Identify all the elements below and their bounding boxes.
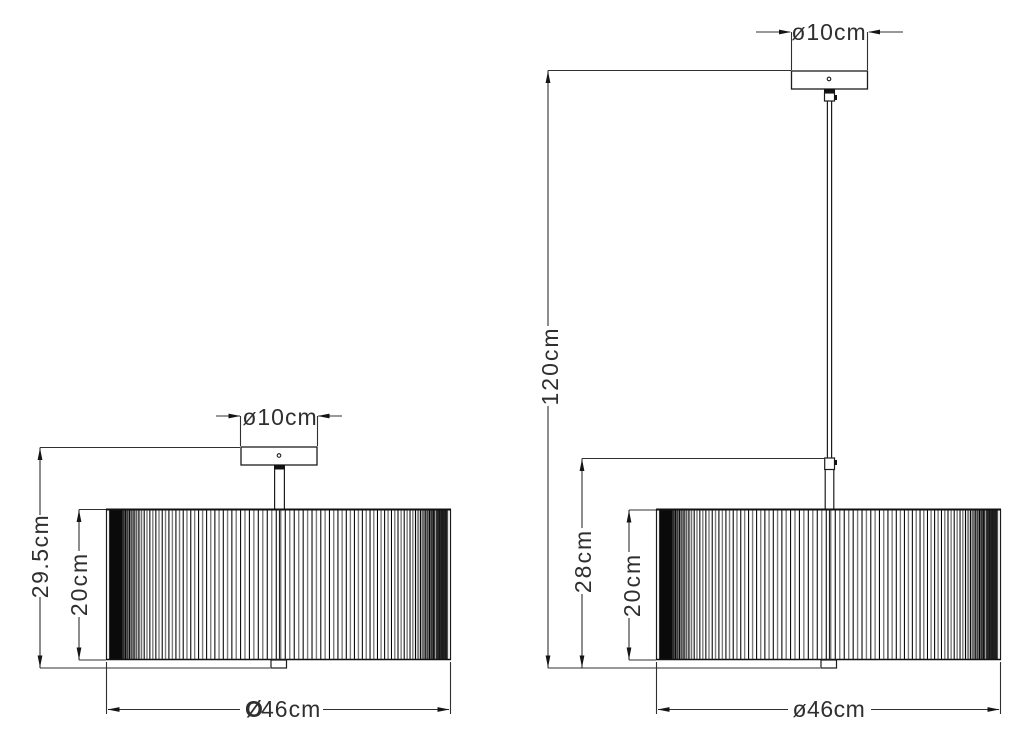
svg-text:46cm: 46cm (261, 696, 321, 722)
svg-text:28cm: 28cm (570, 529, 596, 593)
svg-text:ø10cm: ø10cm (242, 404, 317, 430)
svg-text:ø10cm: ø10cm (791, 19, 866, 45)
svg-text:120cm: 120cm (537, 326, 563, 405)
svg-text:20cm: 20cm (619, 553, 645, 617)
svg-text:20cm: 20cm (66, 552, 92, 616)
svg-text:29.5cm: 29.5cm (27, 514, 53, 598)
svg-text:ø46cm: ø46cm (793, 696, 866, 722)
